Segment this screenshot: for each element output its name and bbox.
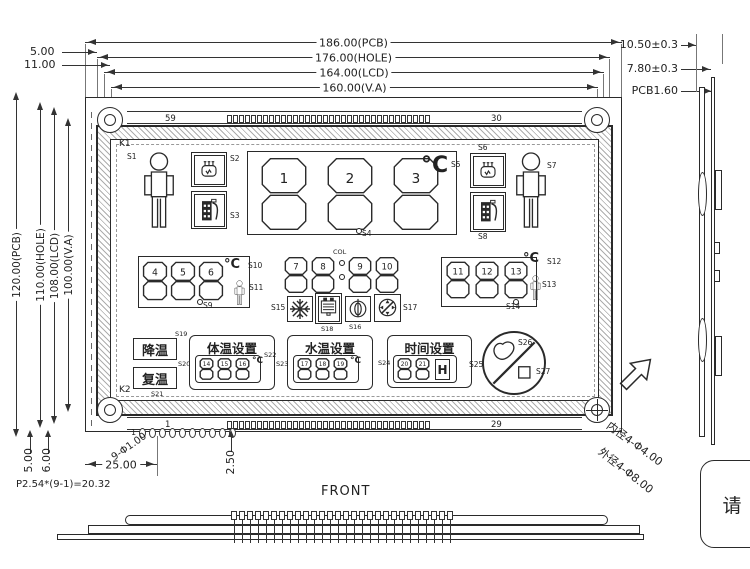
heater-icon	[319, 297, 338, 316]
side-view-component	[714, 242, 720, 254]
mid-digit-group-a: 78	[284, 255, 335, 295]
connector-pad	[239, 421, 244, 429]
connector-pad	[329, 115, 334, 123]
degree-c-icon: °C	[421, 155, 448, 177]
seven-segment-digit: 12	[474, 261, 500, 299]
connector-pin	[287, 511, 293, 520]
side-view-component	[715, 336, 722, 376]
header-pin	[149, 428, 156, 438]
connector-pad	[407, 421, 412, 429]
pump-unit-icon	[195, 195, 223, 225]
main-digit-group: 123	[257, 156, 443, 232]
connector-pin	[311, 511, 317, 520]
connector-pad	[341, 115, 346, 123]
heating-pad-icon-box	[191, 152, 227, 187]
heating-pad-icon	[195, 156, 223, 184]
dim-pin-offset: 25.00	[85, 464, 157, 465]
connector-pad	[293, 421, 298, 429]
connector-pin	[271, 511, 277, 520]
svg-text:19: 19	[337, 362, 345, 368]
connector-pad	[239, 115, 244, 123]
degree-c-icon: °C	[350, 357, 361, 366]
sensor-label: S7	[547, 162, 557, 170]
dim-top-hole: 176.00(HOLE)	[97, 57, 610, 58]
fan-icon-box	[374, 294, 401, 322]
timer-icon	[347, 298, 369, 320]
connector-pad	[371, 115, 376, 123]
connector-pad	[419, 421, 424, 429]
pump-unit-icon-box	[191, 191, 227, 229]
header-pin	[209, 428, 216, 438]
svg-text:4: 4	[152, 267, 158, 278]
bottom-view-base-bar	[57, 534, 644, 540]
connector-pad	[359, 115, 364, 123]
svg-text:15: 15	[221, 362, 229, 368]
bottom-view-pcb-bar	[88, 525, 640, 534]
connector-pad	[245, 421, 250, 429]
dim-right-total: 10.50±0.3	[608, 39, 678, 51]
connector-pad	[353, 115, 358, 123]
pin-number: 59	[165, 114, 176, 124]
connector-pin	[415, 511, 421, 520]
connector-pad	[401, 115, 406, 123]
colon-dot	[339, 274, 345, 280]
seven-segment-digit: 9	[348, 255, 372, 295]
connector-pin	[255, 511, 261, 520]
svg-text:13: 13	[510, 268, 521, 278]
connector-pin	[431, 511, 437, 520]
header-pin	[189, 428, 196, 438]
connector-pin	[439, 511, 445, 520]
side-view-component	[715, 170, 722, 210]
dim-left-pcb: 120.00(PCB)	[16, 97, 17, 432]
pin-number: 30	[491, 114, 502, 124]
witness-line	[696, 34, 697, 92]
connector-pad	[389, 115, 394, 123]
header-pin	[159, 428, 166, 438]
svg-text:9: 9	[357, 263, 363, 273]
side-view-lcd-bar	[699, 87, 705, 437]
sensor-label: S3	[230, 212, 240, 220]
snowflake-icon	[288, 297, 312, 321]
body-temp-digits: 141516	[199, 358, 250, 380]
svg-text:7: 7	[293, 263, 299, 273]
dim-left-lcd: 108.00(LCD)	[54, 112, 55, 419]
connector-pad	[347, 421, 352, 429]
connector-pin	[383, 511, 389, 520]
connector-pad	[251, 115, 256, 123]
connector-pad	[257, 115, 262, 123]
side-view-zebra	[698, 172, 707, 216]
svg-text:14: 14	[203, 362, 211, 368]
connector-pin	[399, 511, 405, 520]
connector-pad	[311, 115, 316, 123]
connector-pad	[329, 421, 334, 429]
svg-text:2: 2	[346, 171, 355, 187]
sensor-label: S23	[276, 361, 288, 368]
bottom-pad-row	[227, 421, 430, 429]
dim-top-va: 160.00(V.A)	[111, 87, 598, 88]
dim-right-pcb-thickness: PCB1.60	[608, 85, 678, 97]
connector-pin	[239, 511, 245, 520]
dim-pin-pitch: P2.54*(9-1)=20.32	[16, 479, 110, 490]
sensor-label: S21	[151, 391, 163, 398]
connector-pad	[389, 421, 394, 429]
connector-pad	[293, 115, 298, 123]
svg-text:11: 11	[452, 268, 463, 278]
svg-text:17: 17	[301, 362, 309, 368]
connector-pad	[281, 421, 286, 429]
connector-pad	[227, 115, 232, 123]
sensor-label: S5	[451, 161, 461, 169]
sensor-label: S10	[248, 262, 262, 270]
seven-segment-digit: 8	[311, 255, 335, 295]
connector-pad	[257, 421, 262, 429]
top-edge-connector: 59 30	[127, 111, 582, 124]
dim-label: 110.00(HOLE)	[35, 225, 47, 305]
svg-text:20: 20	[401, 362, 409, 368]
connector-pad	[371, 421, 376, 429]
svg-text:1: 1	[280, 171, 289, 187]
seven-segment-digit: 10	[375, 255, 399, 295]
prohibition-graphics	[484, 333, 544, 393]
sensor-label: S26	[518, 339, 532, 347]
connector-pad	[401, 421, 406, 429]
hour-symbol: H	[435, 359, 450, 380]
connector-pad	[383, 115, 388, 123]
header-pin	[169, 428, 176, 438]
connector-pad	[359, 421, 364, 429]
connector-pin	[447, 511, 453, 520]
seven-segment-digit: 1	[257, 156, 311, 232]
connector-pad	[335, 421, 340, 429]
connector-pad	[263, 421, 268, 429]
connector-pad	[323, 115, 328, 123]
dim-top-pcb: 186.00(PCB)	[85, 42, 622, 43]
connector-pad	[413, 115, 418, 123]
svg-text:18: 18	[319, 362, 327, 368]
seven-segment-digit: 20	[397, 358, 412, 380]
person-icon	[140, 150, 178, 232]
seven-segment-digit: 6	[198, 261, 224, 301]
person-icon-small	[233, 280, 246, 306]
sensor-label: S13	[542, 281, 556, 289]
connector-pad	[305, 421, 310, 429]
svg-text:8: 8	[320, 263, 326, 273]
connector-pin	[359, 511, 365, 520]
witness-line	[722, 34, 723, 64]
leader-line	[681, 91, 713, 92]
header-pin	[219, 428, 226, 438]
dim-left-offset-5: 5.00	[30, 46, 55, 58]
sensor-label: S27	[536, 368, 550, 376]
seven-segment-digit: 14	[199, 358, 214, 380]
connector-pad	[425, 421, 430, 429]
mounting-hole-br	[584, 397, 610, 423]
prohibition-icon	[482, 331, 546, 395]
heater-icon-box	[315, 293, 342, 324]
connector-pad	[317, 421, 322, 429]
pump-unit-icon-box	[470, 192, 506, 232]
sensor-label: S20	[178, 361, 190, 368]
person-icon-small	[529, 275, 542, 301]
connector-pin	[263, 511, 269, 520]
dim-left-va: 100.00(V.A)	[68, 123, 69, 407]
colon-dot	[339, 260, 345, 266]
sensor-label: S4	[362, 230, 372, 238]
connector-pin	[407, 511, 413, 520]
mid-digit-group-b: 910	[348, 255, 399, 295]
dim-right-mid: 7.80±0.3	[608, 63, 678, 75]
seven-segment-digit: 21	[415, 358, 430, 380]
connector-pin	[375, 511, 381, 520]
sensor-label: S25	[469, 361, 483, 369]
time-set-digits: 2021	[397, 358, 430, 380]
connector-pad	[287, 115, 292, 123]
sensor-label: S22	[264, 352, 276, 359]
connector-pin	[231, 511, 237, 520]
connector-pad	[347, 115, 352, 123]
dim-left-offset-11: 11.00	[24, 59, 56, 71]
connector-pad	[305, 115, 310, 123]
dim-bottom-5: 5.00	[22, 448, 35, 473]
connector-pin	[247, 511, 253, 520]
seven-segment-digit: 16	[235, 358, 250, 380]
connector-pad	[395, 421, 400, 429]
key-label-k2: K2	[119, 386, 131, 395]
seven-segment-digit: 18	[315, 358, 330, 380]
witness-line	[157, 436, 158, 476]
connector-pad	[233, 115, 238, 123]
sensor-label: S18	[321, 326, 333, 333]
seven-segment-digit: 5	[170, 261, 196, 301]
connector-pad	[323, 421, 328, 429]
sensor-label: S2	[230, 155, 240, 163]
connector-pad	[299, 421, 304, 429]
seven-segment-digit: 2	[323, 156, 377, 232]
pin-header-row	[139, 428, 236, 438]
dim-label: 164.00(LCD)	[316, 67, 391, 80]
connector-pad	[383, 421, 388, 429]
connector-pin	[351, 511, 357, 520]
leader-line	[62, 65, 110, 66]
mounting-hole-tr	[584, 107, 610, 133]
side-view-component	[714, 270, 720, 282]
connector-pad	[395, 115, 400, 123]
sensor-label: S9	[203, 302, 213, 310]
dim-2-50: 2.50	[224, 450, 237, 475]
connector-pad	[353, 421, 358, 429]
seven-segment-digit: 11	[445, 261, 471, 299]
note-box: 请	[700, 460, 750, 548]
connector-pad	[341, 421, 346, 429]
person-icon	[512, 150, 550, 232]
connector-pad	[335, 115, 340, 123]
note-text: 请	[722, 491, 741, 518]
dim-label: 108.00(LCD)	[49, 229, 61, 301]
degree-c-icon: °C	[252, 357, 263, 366]
heating-pad-icon-box	[470, 153, 506, 188]
seven-segment-digit: 17	[297, 358, 312, 380]
sensor-label: S1	[127, 153, 137, 161]
connector-pin	[303, 511, 309, 520]
crosshair	[597, 399, 598, 421]
dim-label: 25.00	[102, 459, 140, 472]
colon-label: COL	[333, 249, 346, 256]
connector-pin	[423, 511, 429, 520]
svg-text:5: 5	[180, 267, 186, 278]
sensor-label: S12	[547, 258, 561, 266]
connector-pin	[319, 511, 325, 520]
connector-pad	[263, 115, 268, 123]
sensor-label: S11	[249, 284, 263, 292]
svg-text:6: 6	[208, 267, 214, 278]
svg-text:12: 12	[481, 268, 492, 278]
connector-pad	[413, 421, 418, 429]
mounting-hole-bl	[97, 397, 123, 423]
connector-pad	[299, 115, 304, 123]
connector-pad	[275, 115, 280, 123]
connector-pad	[425, 115, 430, 123]
connector-pad	[287, 421, 292, 429]
sensor-label: S19	[175, 331, 187, 338]
connector-pad	[377, 115, 382, 123]
connector-pad	[251, 421, 256, 429]
sensor-label: S16	[349, 324, 361, 331]
connector-pad	[269, 421, 274, 429]
header-pin	[179, 428, 186, 438]
cool-mode-box: 降温	[133, 338, 177, 360]
dim-label: 186.00(PCB)	[316, 37, 391, 50]
seven-segment-digit: 15	[217, 358, 232, 380]
timer-icon-box	[345, 296, 371, 322]
connector-pin	[279, 511, 285, 520]
crosshair	[586, 410, 608, 411]
leader-line	[62, 52, 97, 53]
snowflake-icon-box	[287, 296, 313, 322]
dim-top-lcd: 164.00(LCD)	[104, 72, 604, 73]
svg-text:3: 3	[412, 171, 421, 187]
front-view-label: FRONT	[321, 485, 370, 499]
connector-pad	[377, 421, 382, 429]
sensor-label: S24	[378, 360, 390, 367]
seven-segment-digit: 7	[284, 255, 308, 295]
dim-label: 176.00(HOLE)	[312, 52, 395, 65]
connector-pin	[335, 511, 341, 520]
heating-pad-icon	[474, 157, 502, 185]
seven-segment-digit: 19	[333, 358, 348, 380]
connector-pad	[365, 115, 370, 123]
rewarm-mode-box: 复温	[133, 367, 177, 389]
pin-number: 29	[491, 420, 502, 430]
connector-pin	[391, 511, 397, 520]
sensor-label: S15	[271, 304, 285, 312]
leader-line	[681, 45, 697, 46]
sensor-label: S8	[478, 233, 488, 241]
connector-pad	[311, 421, 316, 429]
sensor-label: S17	[403, 304, 417, 312]
connector-pad	[407, 115, 412, 123]
mounting-hole-tl	[97, 107, 123, 133]
connector-pin	[295, 511, 301, 520]
connector-pad	[245, 115, 250, 123]
dim-bottom-6: 6.00	[40, 448, 53, 473]
connector-pin	[367, 511, 373, 520]
connector-pad	[281, 115, 286, 123]
bottom-view-pin-row	[231, 511, 453, 520]
connector-pad	[275, 421, 280, 429]
fan-icon	[376, 296, 399, 319]
pump-unit-icon	[474, 196, 502, 226]
connector-pad	[269, 115, 274, 123]
water-temp-digits: 171819	[297, 358, 348, 380]
svg-text:10: 10	[381, 263, 392, 273]
engineering-drawing-lcd-module: 186.00(PCB) 176.00(HOLE) 164.00(LCD) 160…	[0, 0, 750, 569]
dim-label: 100.00(V.A)	[63, 231, 75, 298]
connector-pin	[327, 511, 333, 520]
sensor-label: S14	[506, 303, 520, 311]
connector-pin	[343, 511, 349, 520]
top-pad-row	[227, 115, 430, 123]
side-view-zebra	[698, 318, 707, 362]
seven-segment-digit: 4	[142, 261, 168, 301]
side-view-pcb-bar	[711, 77, 715, 445]
sensor-label: S6	[478, 144, 488, 152]
left-digit-group: 456	[142, 261, 224, 301]
svg-text:16: 16	[239, 362, 247, 368]
degree-c-icon: °C	[523, 252, 539, 265]
connector-pad	[317, 115, 322, 123]
header-pin	[199, 428, 206, 438]
connector-pad	[365, 421, 370, 429]
dim-label: 160.00(V.A)	[319, 82, 389, 95]
seven-segment-digit: 13	[503, 261, 529, 299]
dim-label: 120.00(PCB)	[11, 229, 23, 301]
degree-c-icon: °C	[224, 258, 240, 271]
right-digit-group: 111213	[445, 261, 529, 299]
connector-pad	[419, 115, 424, 123]
section-line	[91, 112, 92, 430]
dim-left-hole: 110.00(HOLE)	[40, 107, 41, 423]
key-label-k1: K1	[119, 140, 131, 149]
svg-text:21: 21	[419, 362, 427, 368]
